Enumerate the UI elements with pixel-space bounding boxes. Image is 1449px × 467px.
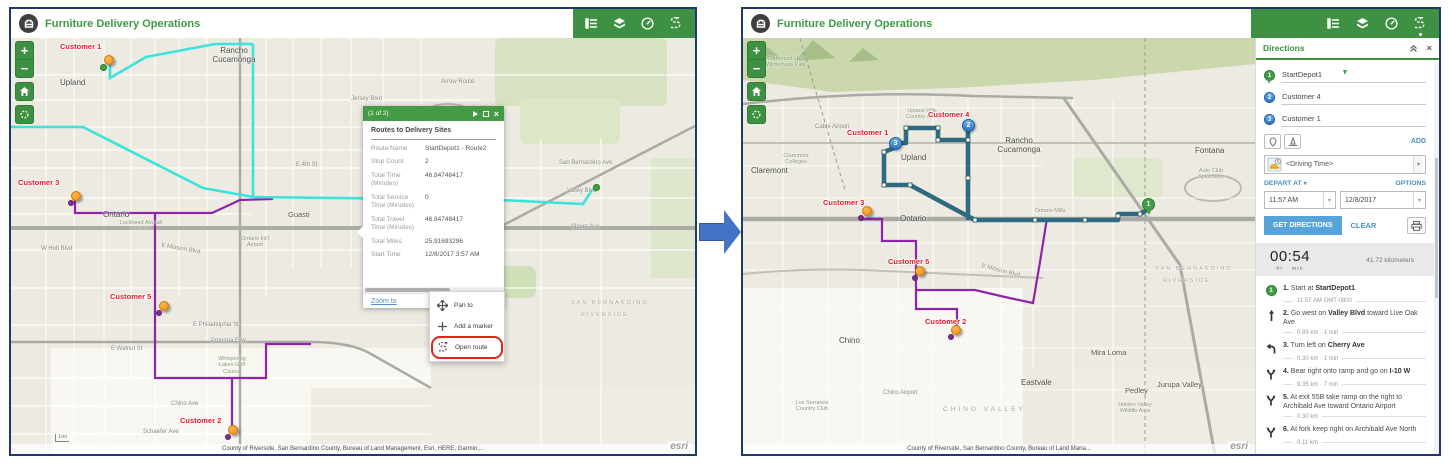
- date-picker-icon[interactable]: ▾: [1413, 192, 1425, 208]
- menu-item-label: Open route: [455, 344, 488, 351]
- map-label: Mira Loma: [1091, 348, 1126, 357]
- stop-row[interactable]: 2 Customer 4: [1264, 90, 1426, 105]
- stop-marker-3[interactable]: 3: [889, 137, 902, 150]
- map-label: Eastvale: [1021, 378, 1052, 387]
- options-link[interactable]: OPTIONS: [1395, 180, 1426, 187]
- turn-left-icon: [1265, 342, 1277, 354]
- step-sub: 0.99 km · 1 min: [1283, 330, 1426, 336]
- map-label: Pedley: [1125, 386, 1148, 395]
- home-button[interactable]: [15, 82, 34, 101]
- right-screenshot: Furniture Delivery Operations: [741, 7, 1441, 456]
- left-screenshot: Furniture Delivery Operations: [9, 7, 697, 456]
- popup-pager: (1 of 2): [368, 110, 389, 117]
- depot-pin[interactable]: 1: [1142, 198, 1155, 211]
- customer-marker[interactable]: [862, 206, 872, 216]
- driving-time-icon: [1267, 157, 1282, 172]
- map-label: Lockheed Aircraft Services: [119, 220, 163, 233]
- stop-2-field: Customer 4: [1281, 90, 1426, 105]
- locate-button[interactable]: [15, 105, 34, 124]
- map-label: CHINO VALLEY: [943, 406, 1026, 413]
- map-label: Valley Blvd: [567, 188, 596, 194]
- travel-mode-value: <Driving Time>: [1286, 161, 1333, 168]
- fork-right-icon: [1265, 368, 1277, 380]
- menu-item-open-route[interactable]: Open route: [430, 337, 504, 358]
- directions-route-icon[interactable]: [669, 17, 683, 31]
- map-label: SAN BERNARDINO: [1155, 266, 1233, 272]
- stop-row[interactable]: 3 Customer 1: [1264, 112, 1426, 127]
- step-sub: 0.30 km · 1 min: [1283, 356, 1426, 362]
- barrier-cone-icon: [1288, 137, 1298, 147]
- zoom-in-button[interactable]: +: [15, 41, 34, 60]
- customer-label: Customer 3: [18, 178, 59, 187]
- zoom-to-link[interactable]: Zoom to: [371, 298, 397, 305]
- map-label: SAN BERNARDINO: [571, 300, 649, 306]
- esri-logo: esri: [667, 441, 691, 452]
- travel-mode-select[interactable]: <Driving Time> ▾: [1264, 155, 1426, 174]
- app-title: Furniture Delivery Operations: [777, 18, 932, 30]
- map-label: W Holt Blvd: [41, 246, 72, 252]
- map-label: Ontario Mills: [1033, 208, 1067, 214]
- map-label: Fontana: [1195, 146, 1224, 155]
- add-barrier-button[interactable]: [1284, 134, 1301, 149]
- map-label: Ontario: [103, 210, 129, 219]
- transition-arrow: [699, 210, 742, 254]
- date-input[interactable]: 12/8/2017▾: [1340, 191, 1426, 209]
- field-value: 2: [425, 158, 429, 166]
- direction-step[interactable]: 5. At exit 55B take ramp on the right to…: [1264, 393, 1426, 412]
- customer-marker[interactable]: [104, 55, 114, 65]
- panel-scrollbar[interactable]: [1434, 62, 1439, 454]
- customer-label: Customer 1: [847, 128, 888, 137]
- clear-link[interactable]: CLEAR: [1351, 221, 1377, 230]
- right-map[interactable]: + − Claremont Hills Wilderness Park Cabl…: [743, 38, 1255, 454]
- field-label: Stop Count: [371, 158, 419, 166]
- map-label: E 4th St: [296, 162, 317, 168]
- field-value: 0: [425, 194, 429, 211]
- field-label: Total Service Time (Minutes): [371, 194, 419, 211]
- stop-2-icon: 2: [1264, 92, 1275, 103]
- collage: Furniture Delivery Operations: [0, 0, 1449, 467]
- stop-1-pin-icon: 1: [1264, 70, 1275, 81]
- map-label: Ontario Int'l Airport: [233, 236, 277, 249]
- maximize-icon[interactable]: [483, 111, 489, 117]
- gauge-icon[interactable]: [641, 17, 654, 31]
- directions-title: Directions: [1263, 43, 1305, 53]
- layers-icon[interactable]: [1355, 17, 1369, 31]
- field-value: 25.91693296: [425, 238, 463, 246]
- customer-label: Customer 4: [928, 110, 969, 119]
- direction-step[interactable]: 3. Turn left on Cherry Ave: [1264, 341, 1426, 354]
- time-input[interactable]: 11:57 AM▾: [1264, 191, 1336, 209]
- straight-arrow-icon: [1266, 310, 1277, 322]
- menu-item-label: Add a marker: [454, 323, 493, 330]
- legend-icon[interactable]: [1326, 17, 1340, 31]
- step-sub: 9.35 km · 7 min: [1283, 382, 1426, 388]
- left-toolbar: [573, 9, 695, 38]
- route-popup: (1 of 2) × Routes to Delivery Sites Rout…: [363, 106, 504, 308]
- time-spinner-icon[interactable]: ▾: [1323, 192, 1335, 208]
- zoom-out-button[interactable]: −: [15, 59, 34, 78]
- map-label: Hidden Valley Wildlife Area: [1109, 402, 1161, 415]
- map-label: Chino Airport: [883, 390, 918, 396]
- map-label: Jersey Blvd: [351, 96, 382, 102]
- stop-dot: [225, 434, 231, 440]
- stop-dot: [948, 334, 954, 340]
- right-map-controls: + −: [747, 41, 766, 124]
- map-label: Claremont Hills Wilderness Park: [761, 56, 811, 69]
- field-value: StartDepot1 - Route2: [425, 145, 486, 153]
- field-value: 46.84748417: [425, 216, 463, 233]
- map-label: Ontario: [900, 214, 926, 223]
- field-label: Total Time (Minutes): [371, 172, 419, 189]
- right-map-graphics: [743, 38, 1255, 454]
- stop-dot: [858, 215, 864, 221]
- summary-duration: 00:54: [1270, 248, 1310, 265]
- map-label: RIVERSIDE: [581, 312, 629, 318]
- map-label: Slover Ave: [571, 224, 600, 230]
- customer-label: Customer 5: [110, 292, 151, 301]
- direction-step[interactable]: 2. Go west on Valley Blvd toward Live Oa…: [1264, 309, 1426, 328]
- step-sub: 0.30 km: [1283, 414, 1426, 420]
- map-label: Claremont Colleges: [773, 153, 819, 166]
- add-stop-button[interactable]: [1264, 134, 1281, 149]
- app-logo-icon: [751, 14, 770, 33]
- map-label: E Philadelphia St: [193, 322, 239, 328]
- direction-step-partial[interactable]: [1264, 451, 1426, 454]
- add-link[interactable]: ADD: [1411, 138, 1426, 145]
- menu-item-add-marker[interactable]: Add a marker: [430, 316, 504, 337]
- scale-bar: 1mi: [55, 434, 69, 442]
- left-appbar: Furniture Delivery Operations: [11, 9, 695, 38]
- customer-label: Customer 2: [925, 317, 966, 326]
- map-label: Jurupa Valley: [1157, 380, 1202, 389]
- popup-title: Routes to Delivery Sites: [371, 127, 496, 140]
- menu-item-label: Pan to: [454, 302, 473, 309]
- app-logo-icon: [19, 14, 38, 33]
- stop-marker-2[interactable]: 2: [962, 119, 975, 132]
- map-label: RIVERSIDE: [1163, 278, 1211, 284]
- print-button[interactable]: [1407, 217, 1426, 234]
- direction-step[interactable]: 4. Bear right onto ramp and go on I-10 W: [1264, 367, 1426, 380]
- gauge-icon[interactable]: [1384, 17, 1398, 31]
- step-sub: 11:57 AM GMT-0800: [1283, 298, 1426, 304]
- printer-icon: [1411, 221, 1422, 231]
- map-label: Cable Airport: [815, 124, 850, 130]
- map-label: Chino: [839, 336, 860, 345]
- fork-right-icon: [1265, 394, 1277, 406]
- legend-icon[interactable]: [585, 17, 598, 31]
- stop-dot: [100, 64, 107, 71]
- zoom-out-button[interactable]: −: [747, 59, 766, 78]
- customer-label: Customer 5: [888, 257, 929, 266]
- map-label: Schaefer Ave: [143, 429, 179, 435]
- left-map-controls: + −: [15, 41, 34, 124]
- travel-mode-scroll[interactable]: ▾: [1413, 156, 1423, 173]
- route-summary: 00:54 hr min 41.72 kilometers: [1256, 243, 1434, 276]
- map-label: Rancho Cucamonga: [987, 136, 1051, 154]
- map-label: Whispering Lakes Golf Course: [211, 356, 253, 375]
- home-button[interactable]: [747, 82, 766, 101]
- step-sub: 0.11 km: [1283, 440, 1426, 446]
- customer-label: Customer 2: [180, 416, 221, 425]
- layers-icon[interactable]: [613, 17, 626, 31]
- popup-body: Routes to Delivery Sites Route NameStart…: [363, 121, 504, 287]
- depart-at-dropdown[interactable]: DEPART AT▾: [1264, 180, 1307, 187]
- locate-button[interactable]: [747, 105, 766, 124]
- close-icon[interactable]: ×: [1427, 43, 1432, 53]
- collapse-icon[interactable]: [1409, 44, 1418, 53]
- field-value: 12/8/2017 3:57 AM: [425, 251, 480, 259]
- directions-panel: Directions × 1 StartDepot1 2 Customer 4 …: [1255, 38, 1439, 454]
- map-attribution: County of Riverside, San Bernardino Coun…: [743, 444, 1255, 454]
- popup-actions-menu: Pan to Add a marker Open route: [429, 291, 505, 362]
- stop-3-icon: 3: [1264, 114, 1275, 125]
- field-value: 46.84748417: [425, 172, 463, 189]
- map-label: Claremont: [751, 166, 788, 175]
- map-label: Pomona Fwy: [211, 338, 246, 344]
- start-pin-icon: 1: [1266, 285, 1277, 296]
- stop-1-field: StartDepot1: [1281, 68, 1426, 83]
- map-label: Arrow Route: [441, 79, 474, 85]
- next-feature-icon[interactable]: [473, 111, 478, 117]
- field-label: Total Travel Time (Minutes): [371, 216, 419, 233]
- menu-item-pan-to[interactable]: Pan to: [430, 295, 504, 316]
- zoom-in-button[interactable]: +: [747, 41, 766, 60]
- map-label: Chino Ave: [171, 401, 198, 407]
- get-directions-button[interactable]: GET DIRECTIONS: [1264, 216, 1342, 235]
- fork-right-icon: [1265, 426, 1277, 438]
- depot-dot[interactable]: [593, 184, 600, 191]
- map-label: San Bernardino Ave: [559, 160, 612, 166]
- ramp-icon: [1265, 452, 1277, 454]
- app-title: Furniture Delivery Operations: [45, 18, 200, 30]
- chevron-down-icon: ▾: [1304, 181, 1307, 187]
- map-label: Guasti: [288, 210, 310, 219]
- map-label: Auto Club Speedway: [1187, 168, 1235, 181]
- direction-step[interactable]: 6. At fork keep right on Archibald Ave N…: [1264, 425, 1426, 438]
- active-tool-dot: [1419, 33, 1422, 36]
- right-appbar: Furniture Delivery Operations: [743, 9, 1439, 38]
- plus-icon: [437, 321, 448, 332]
- customer-label: Customer 1: [60, 42, 101, 51]
- esri-logo: esri: [1227, 441, 1251, 452]
- map-label: E Walnut St: [111, 346, 142, 352]
- pin-icon: [1269, 137, 1277, 147]
- left-map[interactable]: + − Upland Rancho Cucamonga Ontario Guas…: [11, 38, 695, 454]
- map-label: Rancho Cucamonga: [203, 46, 265, 64]
- map-attribution: County of Riverside, San Bernardino Coun…: [11, 444, 695, 454]
- open-route-icon: [437, 342, 449, 353]
- stop-dot: [912, 275, 918, 281]
- map-label: Upland: [60, 78, 85, 87]
- right-toolbar: [1251, 9, 1439, 38]
- direction-step[interactable]: 1 1. Start at StartDepot1: [1264, 284, 1426, 296]
- summary-distance: 41.72 kilometers: [1366, 257, 1422, 264]
- map-label: Los Serranos Country Club: [787, 400, 837, 413]
- map-label: Upland: [901, 153, 926, 162]
- field-label: Total Miles: [371, 238, 419, 246]
- field-label: Start Time: [371, 251, 419, 259]
- close-icon[interactable]: ×: [494, 111, 499, 117]
- pan-icon: [437, 300, 448, 311]
- directions-route-icon[interactable]: [1413, 17, 1427, 31]
- stop-dot: [68, 200, 74, 206]
- park-area: [495, 38, 667, 106]
- field-label: Route Name: [371, 145, 419, 153]
- popup-titlebar[interactable]: (1 of 2) ×: [363, 106, 504, 121]
- customer-label: Customer 3: [823, 198, 864, 207]
- stop-dot: [156, 310, 162, 316]
- stop-3-field: Customer 1: [1281, 112, 1426, 127]
